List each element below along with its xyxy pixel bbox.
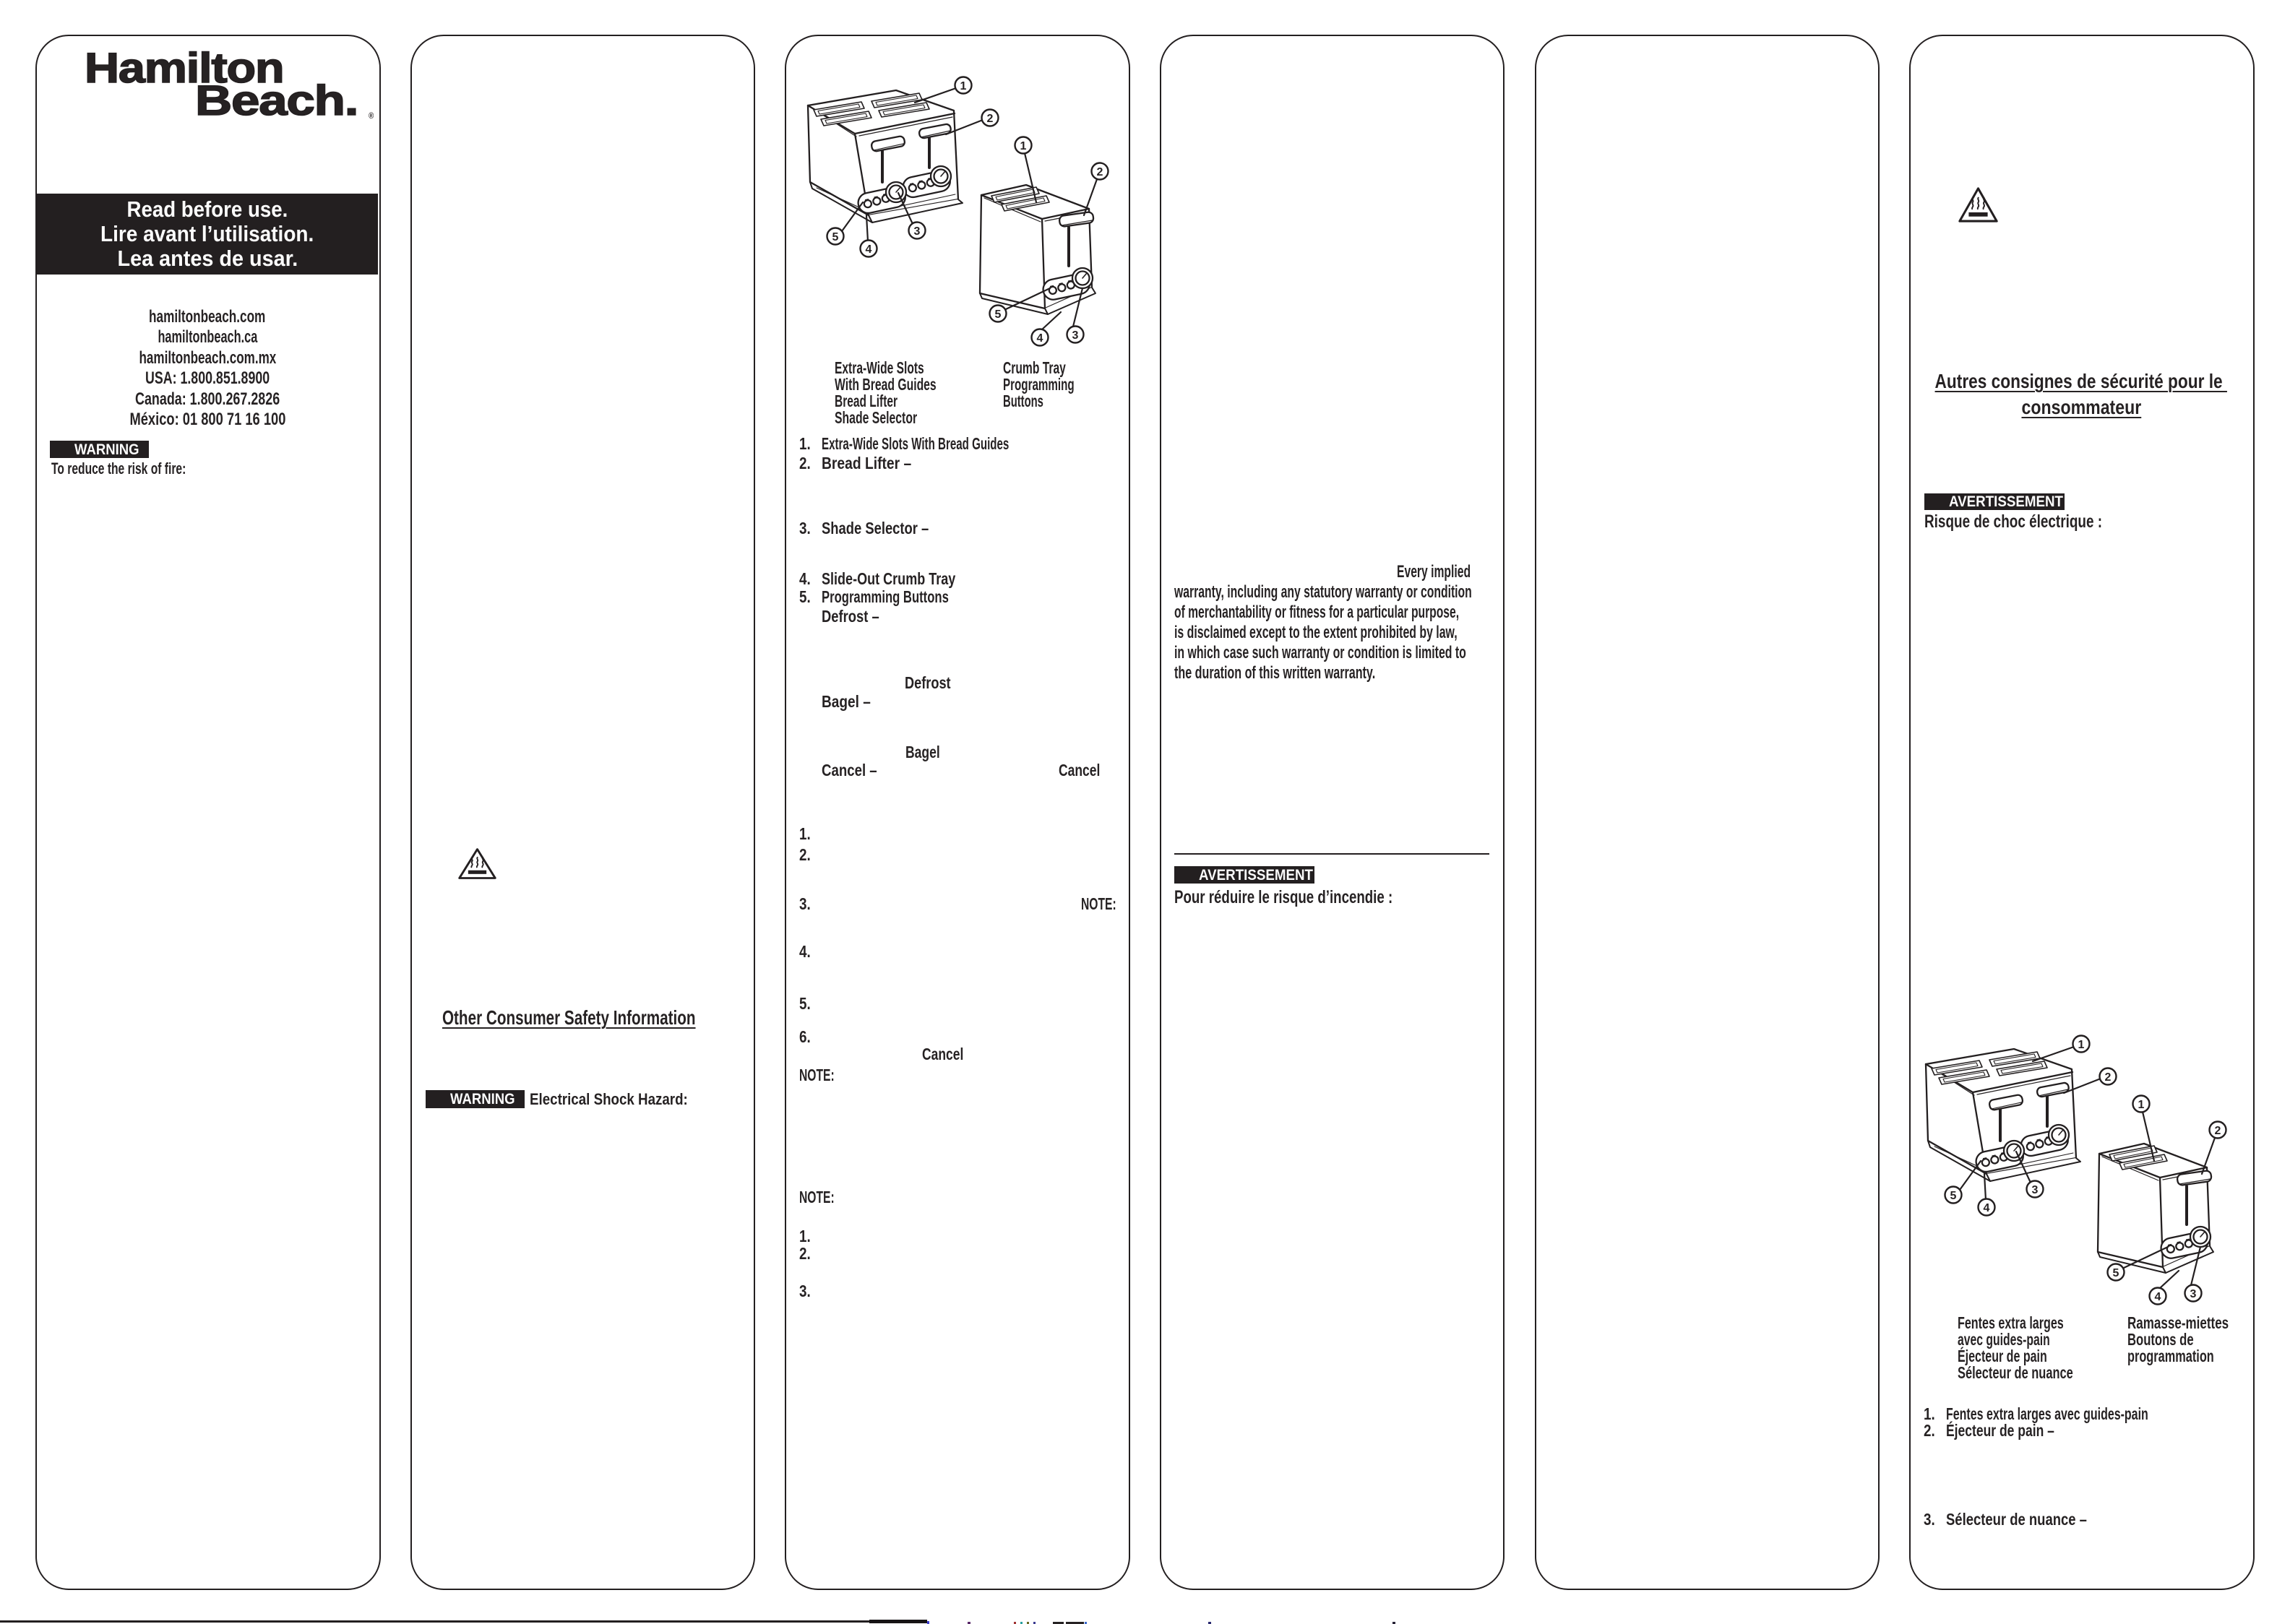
svg-text:2: 2 [1097, 166, 1103, 178]
svg-text:3: 3 [2032, 1184, 2039, 1196]
svg-text:3: 3 [914, 225, 921, 238]
svg-text:2: 2 [2105, 1071, 2112, 1084]
svg-text:3: 3 [2190, 1288, 2197, 1300]
svg-text:1: 1 [2138, 1099, 2145, 1111]
svg-text:5: 5 [832, 231, 839, 243]
svg-text:4: 4 [1037, 332, 1043, 345]
svg-text:1: 1 [2078, 1039, 2085, 1051]
svg-text:4: 4 [2155, 1291, 2161, 1303]
svg-text:1: 1 [960, 80, 967, 92]
svg-text:3: 3 [1072, 329, 1079, 342]
svg-text:4: 4 [866, 243, 872, 256]
svg-text:5: 5 [2113, 1267, 2119, 1279]
svg-text:4: 4 [1984, 1202, 1990, 1214]
svg-text:2: 2 [987, 113, 994, 125]
svg-text:1: 1 [1020, 140, 1027, 152]
svg-text:5: 5 [995, 308, 1002, 321]
svg-text:5: 5 [1950, 1190, 1957, 1202]
svg-text:2: 2 [2215, 1125, 2221, 1137]
